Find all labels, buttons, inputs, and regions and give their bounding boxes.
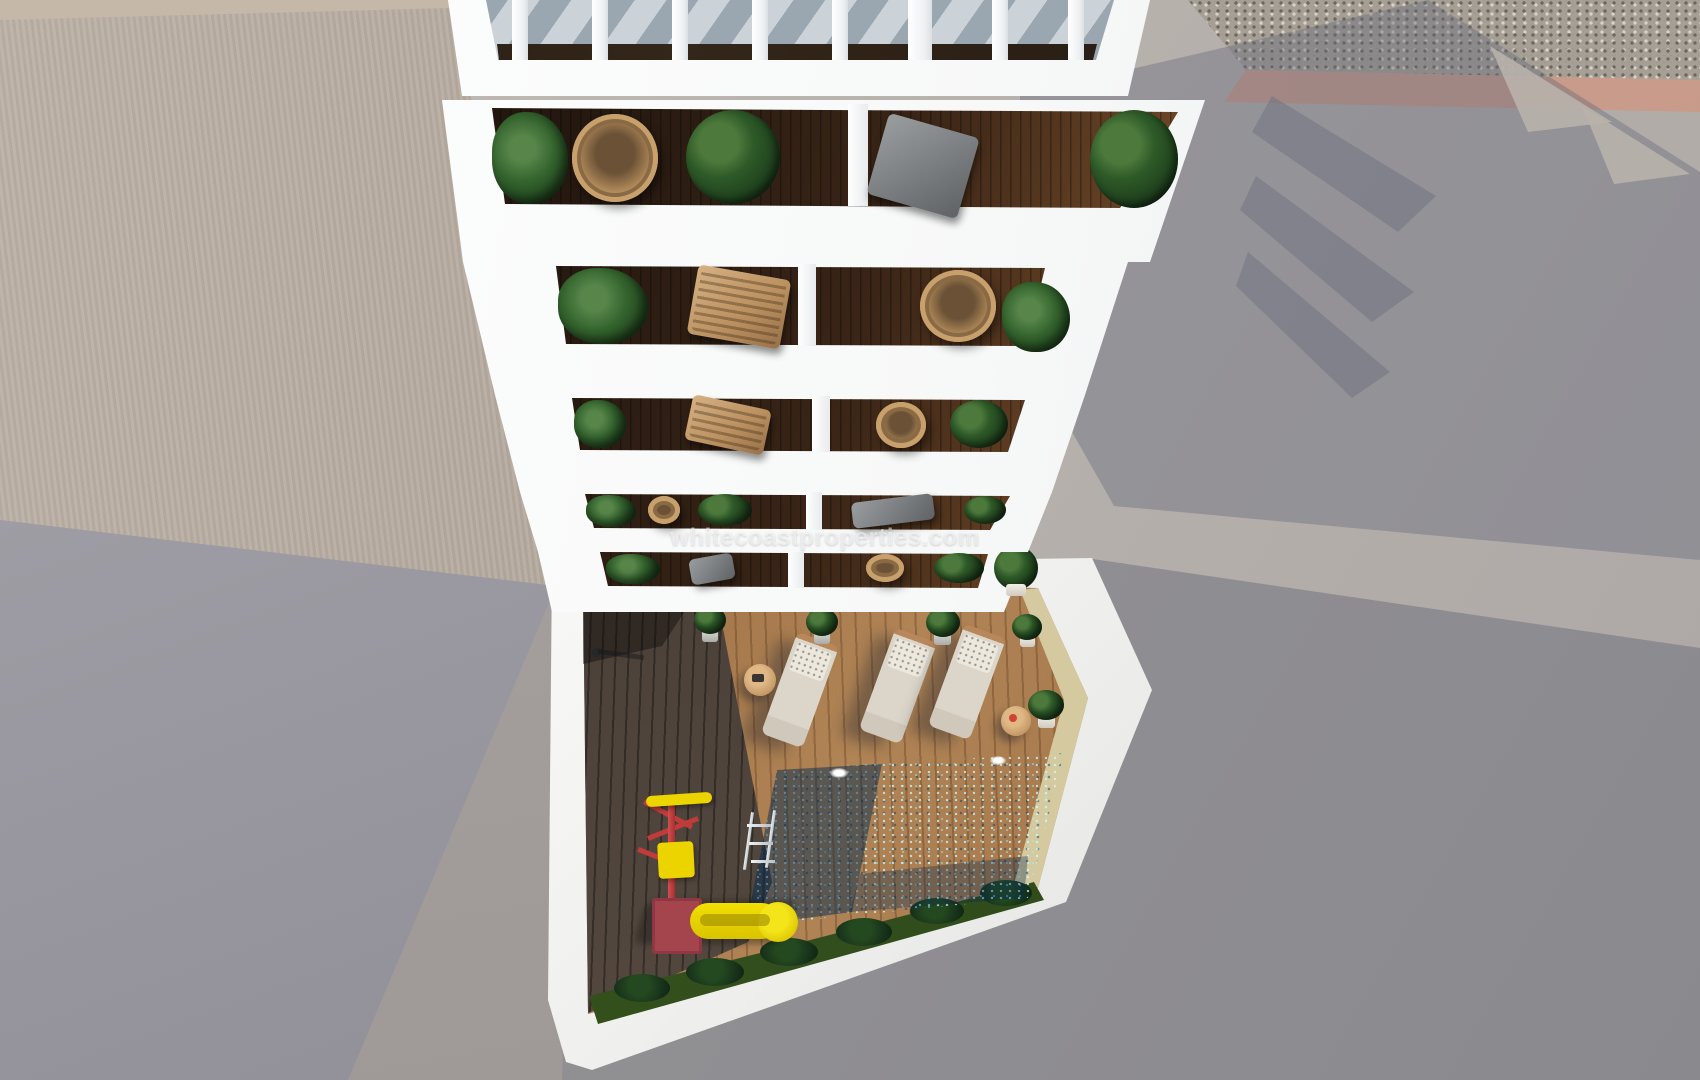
rattan-chair [920,270,996,342]
balcony-divider [848,104,868,206]
pergola-slat [992,0,1008,60]
balcony-plant [934,553,984,583]
balcony-plant [1090,110,1178,208]
climbing-frame-panel [657,841,695,879]
balcony-plant [950,400,1008,448]
pool-light [990,756,1006,765]
balcony-plant [574,400,626,448]
potted-plant [926,608,960,637]
pergola-slat [672,0,688,60]
pergola-slat [832,0,848,60]
shrub [614,974,670,1002]
pergola-slat [752,0,768,60]
pergola-slat [908,0,932,60]
pergola-slat [512,0,528,60]
table-items [1009,714,1017,722]
slide-chute-groove [700,914,770,926]
balcony-divider [812,396,830,452]
rattan-chair [866,554,904,582]
side-table [1001,706,1031,736]
pool-ladder-rung [749,842,773,845]
balcony-plant [686,110,780,204]
balcony-divider [798,264,816,346]
potted-plant [1012,614,1042,640]
shrub [686,958,744,986]
lounger-pillow [788,642,832,683]
pool-light [830,768,848,778]
balcony-divider [788,550,804,588]
balcony-plant [698,494,752,526]
pool-ladder-rung [747,824,771,827]
potted-plant [806,608,838,636]
aerial-render-scene: whitecoastproperties.com [0,0,1700,1080]
balcony-plant [606,554,660,584]
railing-plant [1002,282,1070,352]
potted-plant [1028,690,1064,720]
table-items [752,674,764,682]
rattan-chair [876,402,926,448]
balcony-plant [586,495,636,527]
rattan-chair [572,114,658,202]
pool-ladder-rung [751,860,775,863]
pergola-slat [1068,0,1084,60]
balcony-plant [558,268,648,344]
lounger-pillow [955,634,999,675]
white-plant-pot [1006,584,1026,596]
balcony-plant [964,496,1006,524]
watermark-text: whitecoastproperties.com [660,524,990,552]
rattan-chair [648,496,680,524]
balcony-plant [492,112,568,204]
lounger-pillow [886,638,930,679]
shrub [836,918,892,946]
pergola-slat [592,0,608,60]
